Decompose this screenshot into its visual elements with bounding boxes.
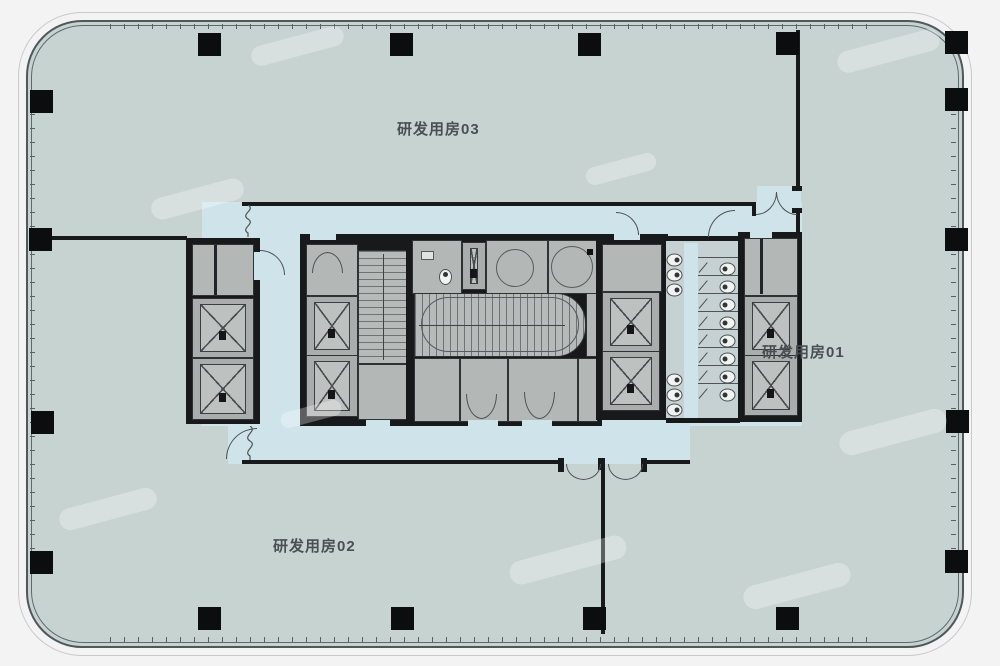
column [29,228,52,251]
utility-room [548,240,598,294]
corridor-south-wall [242,460,560,464]
toilet-icon [667,284,683,297]
toilet-icon [667,389,683,402]
accessible-wc-room [412,240,462,294]
toilet-stalls [698,243,738,419]
column [776,32,799,55]
shaft-dot [587,249,593,255]
column [390,33,413,56]
toilet-icon [667,404,683,417]
toilet-aisle [684,243,698,419]
column [776,607,799,630]
column [945,228,968,251]
column [583,607,606,630]
door-gap [366,420,390,426]
room-divider [214,245,217,295]
elevator [192,298,254,358]
round-fixture-icon [496,249,534,287]
mullion-ticks-top [110,24,876,29]
elevator [744,355,798,416]
room-divider [760,239,763,294]
toilet-icon [667,374,683,387]
column [198,33,221,56]
lobby-room [192,244,254,296]
column [391,607,414,630]
staircase-2 [414,293,586,357]
sink-icon [421,251,434,260]
column [198,607,221,630]
area-label-room01: 研发用房01 [762,341,845,362]
corridor-south [228,424,690,464]
elevator-bank-mid-east [596,234,668,420]
elevator-bank-west [186,238,260,424]
stair-landing [358,364,408,420]
door-gap [522,420,552,426]
toilet-icon [439,269,452,285]
accordion-door-icon [240,205,256,237]
toilet-icon [667,269,683,282]
column [578,33,601,56]
mullion-ticks-bottom [110,637,876,642]
column [31,411,54,434]
utility-room [486,240,548,294]
west-divider-wall [29,236,187,240]
column [30,90,53,113]
elevator [306,296,358,356]
elevator [602,292,660,352]
lobby-room [744,238,798,296]
elevator-bank-east [738,232,802,422]
toilet-area [666,240,740,422]
service-shaft [462,242,486,290]
column [945,88,968,111]
floor-plan-canvas: 研发用房03 研发用房01 研发用房02 [0,0,1000,666]
corridor-north-wall [242,202,756,206]
accordion-door-icon [242,426,258,460]
core-utility-block [406,234,602,426]
column [945,31,968,54]
area-label-room03: 研发用房03 [397,118,480,139]
toilet-icon [667,254,683,267]
stair-guide-oval [421,297,579,352]
area-label-room02: 研发用房02 [273,535,356,556]
door-gap [750,232,772,238]
column [946,410,969,433]
corridor-south-wall-east [646,460,690,464]
mullion-ticks-left [30,100,35,568]
staircase-1 [358,250,408,364]
mullion-ticks-right [951,100,956,568]
store-room [414,358,460,422]
elevator [602,351,660,411]
door-frame [558,458,564,472]
door-gap [310,234,336,240]
door-frame [792,186,802,191]
lobby-room [602,244,662,292]
door-gap [468,420,498,426]
toilet-south-wall [666,418,740,423]
duct [578,358,598,422]
column [30,551,53,574]
column [945,550,968,573]
elevator [192,358,254,420]
